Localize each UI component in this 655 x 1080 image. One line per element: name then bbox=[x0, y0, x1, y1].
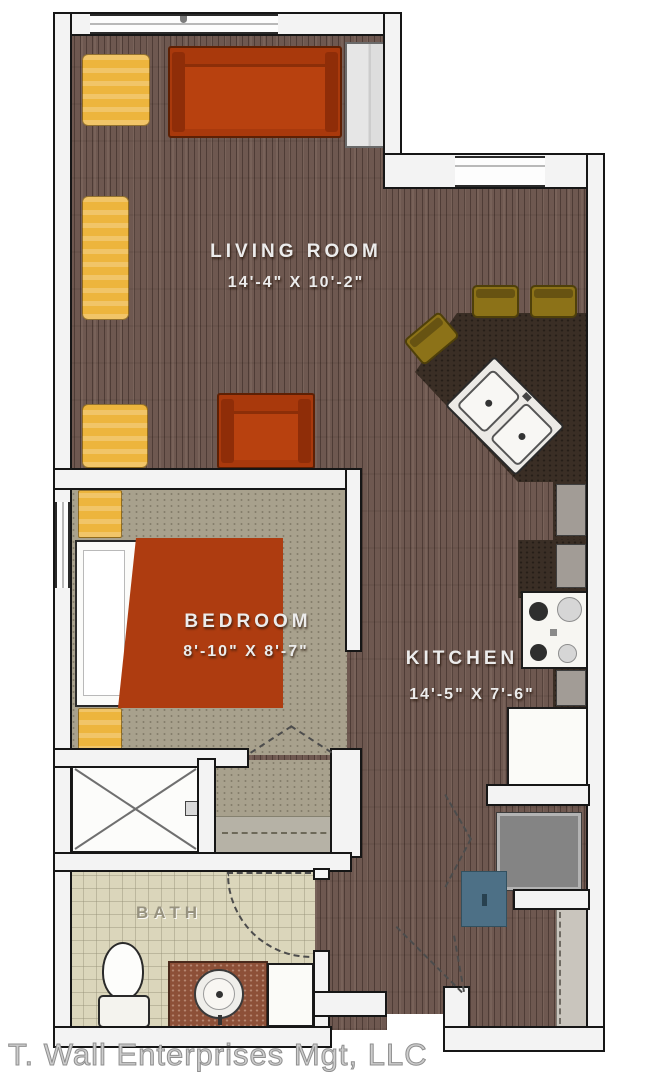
armchair-seat bbox=[233, 411, 299, 460]
stool-back bbox=[476, 289, 515, 298]
closet-shelf bbox=[216, 816, 348, 854]
nightstand bbox=[78, 490, 122, 538]
pillow-icon bbox=[83, 550, 125, 696]
bar-stool bbox=[530, 285, 577, 318]
kitchen-label: KITCHEN bbox=[406, 648, 518, 670]
sofa-seat bbox=[184, 64, 326, 129]
kitchen-dimensions: 14'-5" X 7'-6" bbox=[409, 686, 535, 704]
watermark-text: T. Wall Enterprises Mgt, LLC bbox=[8, 1037, 428, 1073]
wall-laundry-mid bbox=[513, 889, 590, 910]
drain-icon bbox=[484, 398, 494, 408]
pantry-shelf-dashes bbox=[559, 912, 561, 1024]
utility-box-mark bbox=[482, 894, 487, 906]
wall-bedroom-bottom bbox=[53, 748, 249, 768]
toilet-tank bbox=[98, 995, 150, 1028]
burner-icon bbox=[558, 644, 577, 663]
bath-label: BATH bbox=[136, 903, 202, 923]
wall-closet-left bbox=[197, 758, 216, 858]
wall-bottom-right bbox=[443, 1026, 605, 1052]
drain-icon bbox=[517, 432, 527, 442]
faucet-icon bbox=[522, 392, 532, 402]
sofa-arm bbox=[172, 52, 185, 132]
bar-stool bbox=[472, 285, 519, 318]
closet-rod-dashes bbox=[222, 832, 346, 834]
kitchen-window bbox=[455, 156, 545, 187]
armchair-arm bbox=[298, 399, 311, 463]
vanity-counter bbox=[168, 961, 268, 1029]
wall-closet-right bbox=[330, 748, 362, 858]
sofa bbox=[168, 46, 342, 138]
wall-laundry-top bbox=[486, 784, 590, 806]
drain-icon bbox=[216, 991, 223, 998]
shower bbox=[70, 764, 201, 854]
wall-bath-right-upper bbox=[313, 868, 330, 880]
bedroom-window bbox=[55, 502, 70, 588]
armchair bbox=[217, 393, 315, 469]
washer-dryer bbox=[497, 813, 581, 890]
patio-window-panel bbox=[345, 42, 388, 148]
stool-back bbox=[534, 289, 573, 298]
burner-icon bbox=[557, 597, 582, 622]
nightstand bbox=[78, 708, 122, 752]
wall-bedroom-right bbox=[345, 468, 362, 652]
bedroom-label: BEDROOM bbox=[184, 611, 311, 633]
toilet-bowl bbox=[102, 942, 144, 1000]
wall-living-right bbox=[383, 12, 402, 172]
armchair-arm bbox=[221, 399, 234, 463]
storage-bench bbox=[82, 196, 129, 320]
window-mullion-icon bbox=[180, 16, 187, 23]
linen-cabinet bbox=[267, 963, 314, 1027]
living-room-dimensions: 14'-4" X 10'-2" bbox=[228, 274, 364, 292]
accent-chair bbox=[82, 54, 150, 126]
living-room-label: LIVING ROOM bbox=[210, 241, 382, 263]
floor-plan: LIVING ROOM 14'-4" X 10'-2" BEDROOM 8'-1… bbox=[0, 0, 655, 1080]
accent-chair bbox=[82, 404, 148, 468]
burner-icon bbox=[529, 602, 548, 621]
stove bbox=[521, 591, 591, 669]
wall-bath-top bbox=[53, 852, 352, 872]
sofa-arm bbox=[325, 52, 338, 132]
wall-right bbox=[586, 153, 605, 1052]
living-room-window bbox=[90, 14, 278, 34]
vanity-sink-icon bbox=[194, 969, 244, 1019]
cabinet-front-upper bbox=[556, 544, 586, 588]
refrigerator bbox=[507, 707, 590, 787]
bedroom-dimensions: 8'-10" X 8'-7" bbox=[183, 643, 309, 661]
utility-box bbox=[461, 871, 507, 927]
stove-knob-icon bbox=[550, 629, 557, 636]
cabinet-front-lower bbox=[556, 670, 586, 706]
wall-bedroom-top bbox=[53, 468, 362, 490]
wall-hall-bottom bbox=[313, 991, 387, 1017]
burner-icon bbox=[530, 644, 547, 661]
dishwasher-front bbox=[556, 484, 586, 536]
shower-pan-x-icon bbox=[73, 767, 198, 851]
faucet-icon bbox=[218, 1015, 222, 1025]
